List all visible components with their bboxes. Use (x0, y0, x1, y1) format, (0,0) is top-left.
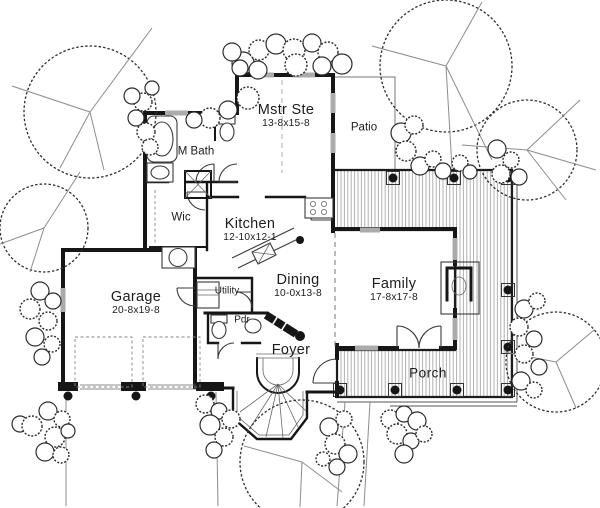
floorplan-drawing (0, 0, 600, 508)
room-dims: 17-8x17-8 (370, 292, 418, 303)
floor-plan: Mstr Ste 13-8x15-8 M Bath Patio Wic Kitc… (0, 0, 600, 508)
room-label-dining: Dining 10-0x13-8 (274, 272, 322, 300)
bush-cluster (510, 293, 547, 398)
bush-cluster (12, 402, 75, 463)
room-dims: 20-8x19-8 (111, 305, 161, 316)
room-dims: 12-10x12-1 (223, 232, 277, 243)
room-name: Kitchen (223, 216, 277, 232)
closet-band (266, 315, 305, 341)
powder-toilet-fixture (211, 315, 227, 339)
room-label-porch: Porch (409, 365, 447, 380)
room-name: Dining (274, 272, 322, 288)
room-label-pdr: Pdr (234, 314, 250, 325)
tree (0, 172, 88, 272)
bush-cluster (20, 282, 61, 365)
room-name: Mstr Ste (258, 102, 314, 118)
room-dims: 10-0x13-8 (274, 288, 322, 299)
vanity-sink-fixture (147, 163, 173, 182)
garage-doors (58, 337, 224, 401)
room-name: Garage (111, 289, 161, 305)
bush-cluster (381, 406, 432, 463)
room-dims: 13-8x15-8 (258, 118, 314, 129)
room-label-utility: Utility (215, 285, 239, 296)
room-label-wic: Wic (171, 212, 190, 225)
room-label-kitchen: Kitchen 12-10x12-1 (223, 216, 277, 244)
bush-cluster (124, 43, 259, 155)
room-label-foyer: Foyer (272, 342, 311, 358)
room-label-m-bath: M Bath (178, 146, 214, 159)
room-label-mstr-ste: Mstr Ste 13-8x15-8 (258, 102, 314, 130)
stair-bay (233, 354, 307, 439)
room-label-patio: Patio (351, 122, 377, 135)
room-label-family: Family 17-8x17-8 (370, 276, 418, 304)
room-label-garage: Garage 20-8x19-8 (111, 289, 161, 317)
bush-cluster (232, 34, 352, 79)
water-heater-fixture (162, 247, 195, 268)
bush-cluster (316, 411, 357, 475)
room-name: Family (370, 276, 418, 292)
